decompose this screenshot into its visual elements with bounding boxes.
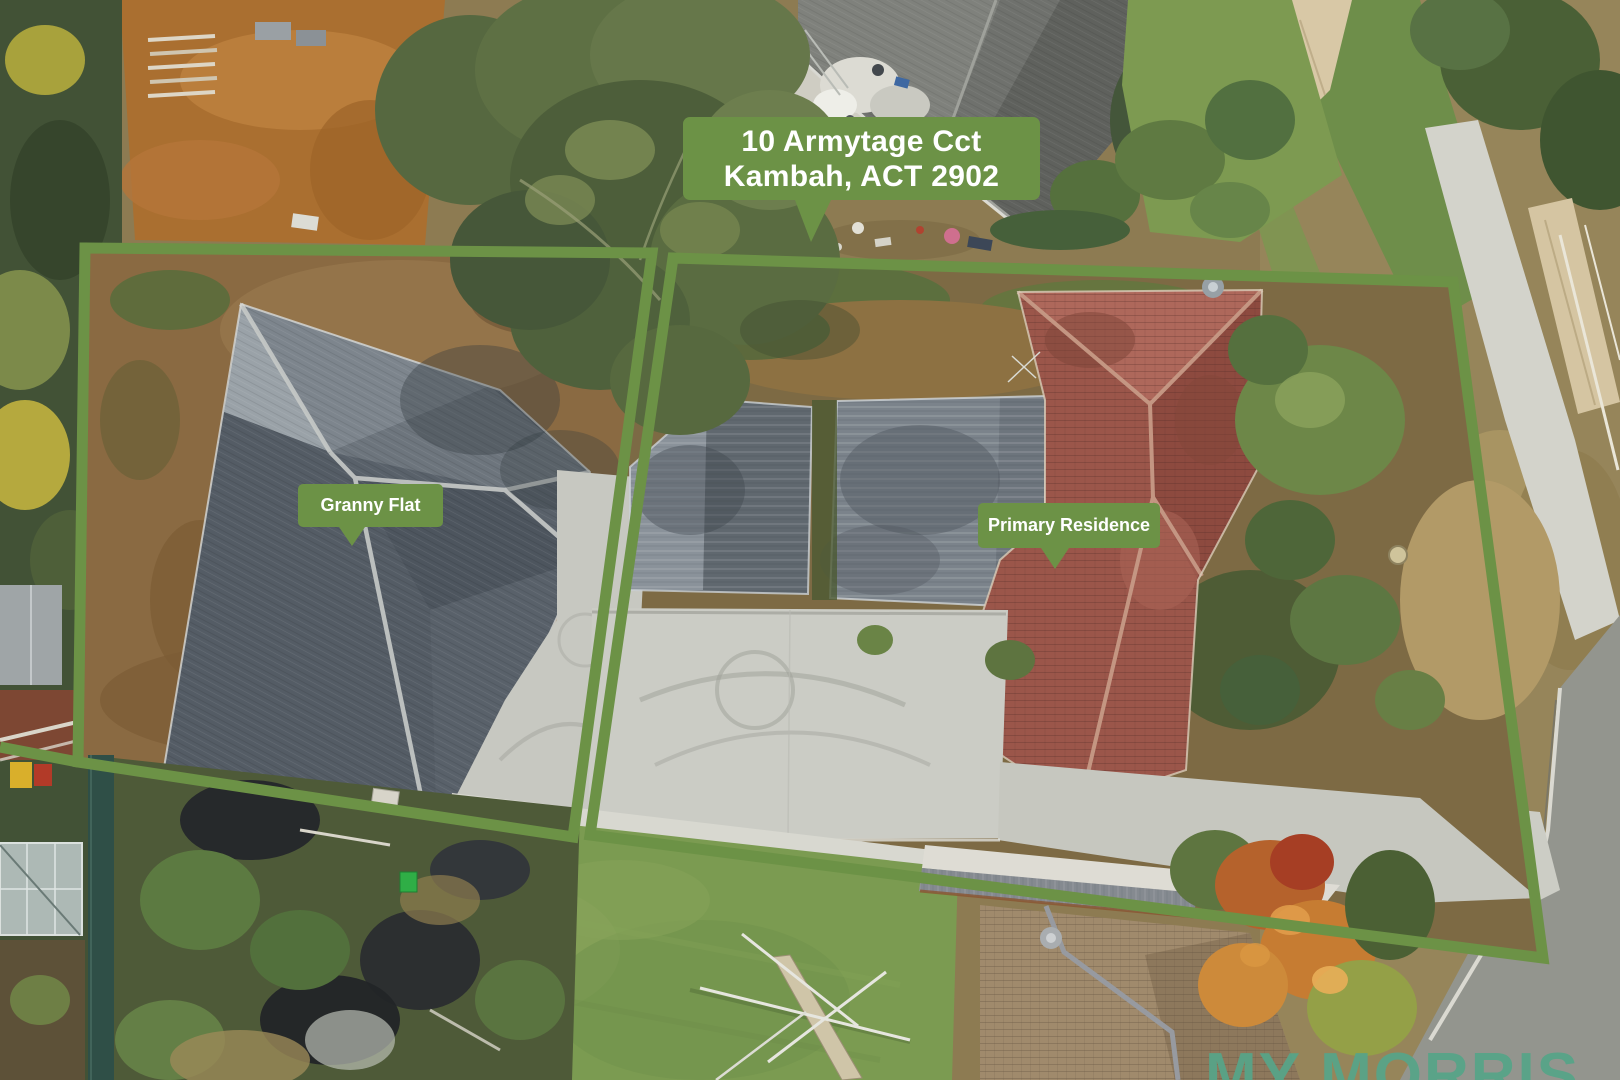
aerial-photo-stage: 10 Armytage Cct Kambah, ACT 2902 Granny … [0,0,1620,1080]
address-callout-pointer [795,200,831,242]
sapling [857,625,893,655]
address-callout: 10 Armytage Cct Kambah, ACT 2902 [683,117,1040,200]
primary-residence-label: Primary Residence [978,503,1160,548]
agency-watermark: MY MORRIS [1205,1040,1580,1080]
primary-residence-label-pointer [1041,548,1069,569]
green-wheelie-bin [400,872,417,892]
primary-residence-label-text: Primary Residence [988,515,1150,536]
granny-flat-label-pointer [339,527,365,546]
address-line1: 10 Armytage Cct [741,124,981,159]
address-line2: Kambah, ACT 2902 [724,159,999,194]
granny-flat-label-text: Granny Flat [320,495,420,516]
pink-object [944,228,960,244]
granny-flat-label: Granny Flat [298,484,443,527]
